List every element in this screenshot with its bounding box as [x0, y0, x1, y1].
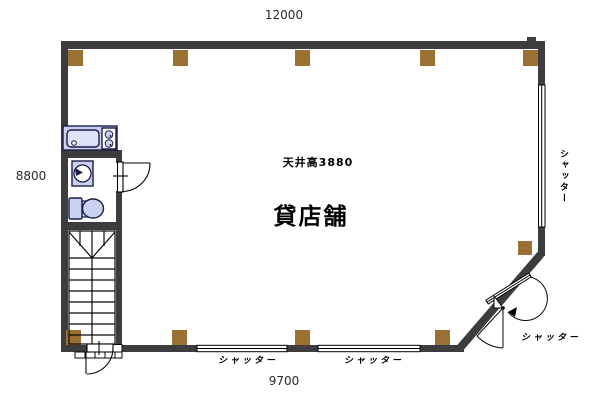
ceiling-height-note: 天井高3880: [248, 154, 388, 170]
shutter-label-right: シャッター: [557, 149, 570, 213]
column: [295, 330, 310, 345]
wall-bottom-1: [61, 345, 87, 352]
toilet-wall-right-upper: [116, 150, 122, 163]
burner-dot: [110, 135, 112, 137]
toilet-tank: [69, 198, 82, 219]
column: [518, 241, 532, 255]
wall-bottom-3: [287, 345, 318, 352]
shutter-label-bottom-left: シャッター: [198, 353, 298, 366]
wall-left: [61, 41, 68, 352]
column: [420, 50, 435, 66]
staircase: [69, 231, 115, 344]
column: [173, 50, 188, 66]
wall-bottom-4: [420, 345, 464, 352]
room-title: 貸店舗: [231, 197, 391, 231]
dimension-bottom: 9700: [234, 374, 334, 388]
toilet-door: [113, 162, 150, 192]
stove-burner-icon: [105, 131, 113, 139]
column: [523, 50, 538, 66]
wall-bottom-2: [122, 345, 197, 352]
wall-right-upper: [538, 41, 545, 85]
wall-top: [61, 41, 545, 49]
wall-top-notch: [527, 37, 536, 42]
burner-dot: [110, 144, 112, 146]
shutter-label-bottom-right: シャッター: [324, 353, 424, 366]
column: [66, 330, 81, 345]
stove-burner-icon: [105, 140, 113, 148]
arrowhead-icon: [508, 307, 517, 317]
wall-right-lower: [538, 227, 545, 256]
door-frame: [118, 162, 124, 192]
dimension-top: 12000: [234, 8, 334, 22]
door-swing-arc: [477, 336, 503, 348]
outer-walls: [61, 37, 545, 352]
floor-plan-canvas: 12000 8800 9700 天井高3880 貸店舗 シャッター シャッター …: [0, 0, 600, 400]
toilet-wall-bottom: [61, 222, 122, 230]
toilet-wall-top: [61, 150, 122, 158]
column: [295, 50, 310, 66]
door-leaf-closed: [87, 344, 113, 352]
sink-drain-icon: [72, 141, 77, 146]
toilet-room-fixtures: [69, 161, 104, 219]
shutter-label-corner: シャッター: [506, 330, 596, 343]
column: [172, 330, 187, 345]
kitchen-unit: [63, 126, 117, 150]
column: [68, 50, 83, 66]
shutter-corner-midline: [487, 275, 530, 302]
door-swing-arc: [122, 163, 150, 192]
stair-wall-right: [116, 230, 122, 345]
dimension-left: 8800: [0, 169, 62, 183]
column: [435, 330, 450, 345]
toilet-bowl: [83, 199, 104, 218]
